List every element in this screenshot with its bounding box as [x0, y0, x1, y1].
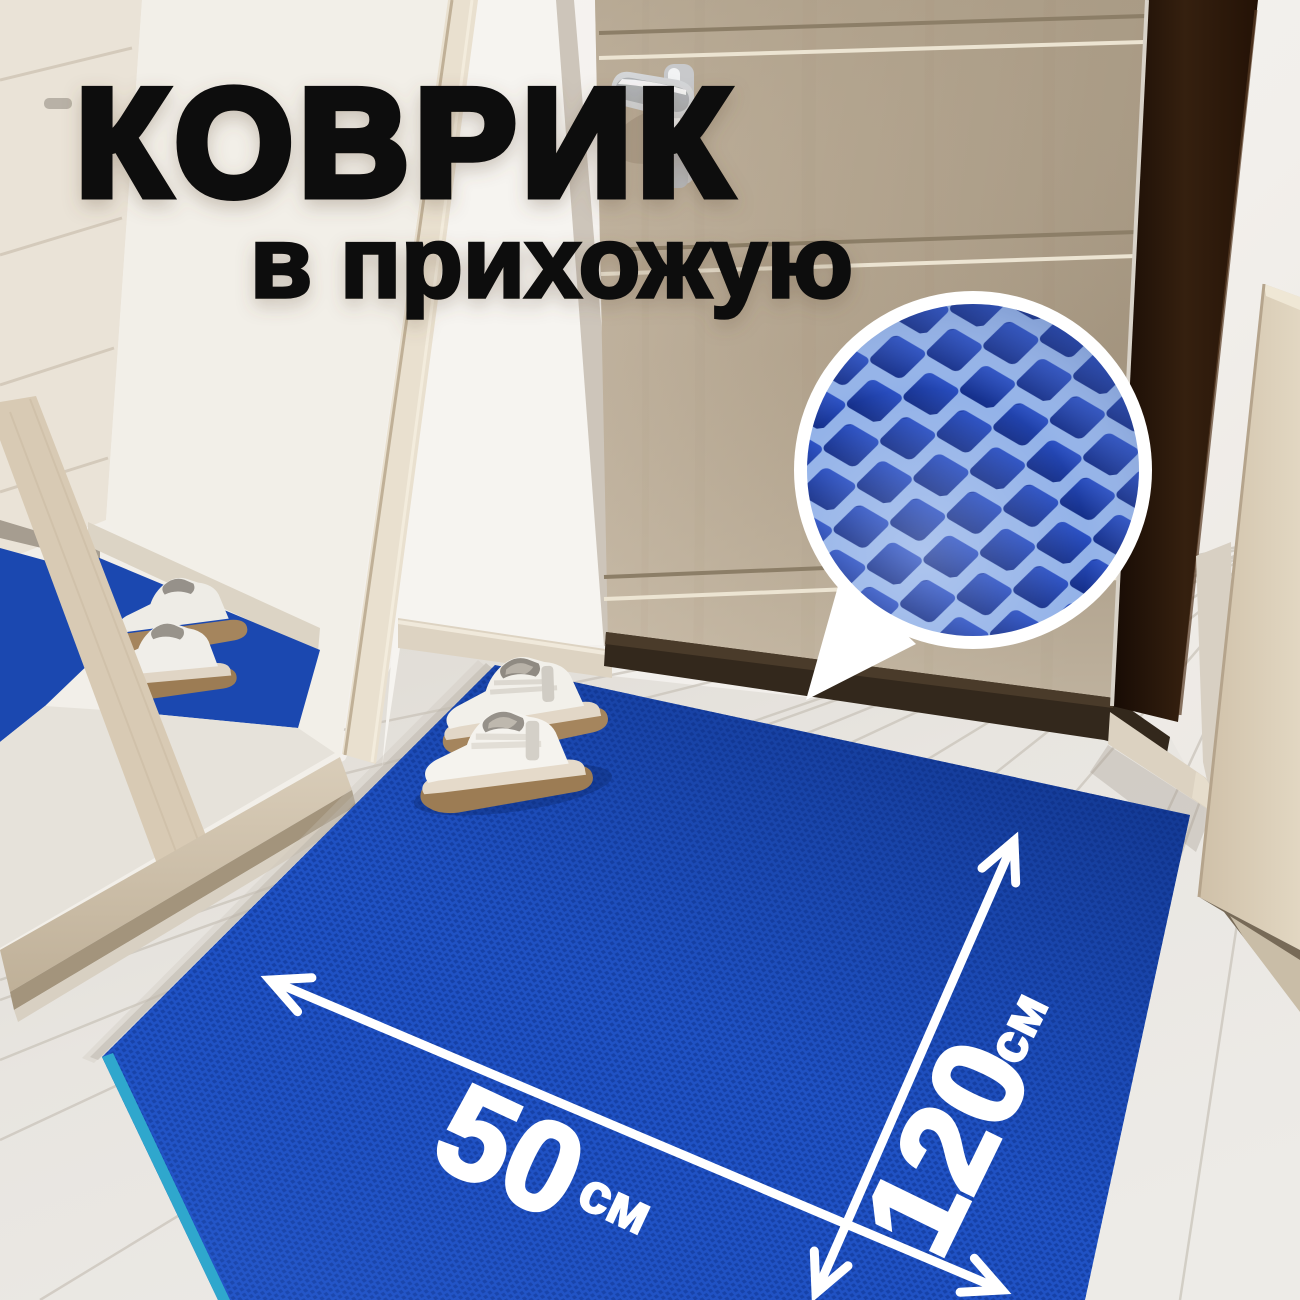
svg-text:в прихожую: в прихожую	[250, 207, 853, 319]
svg-text:КОВРИК: КОВРИК	[76, 58, 736, 228]
